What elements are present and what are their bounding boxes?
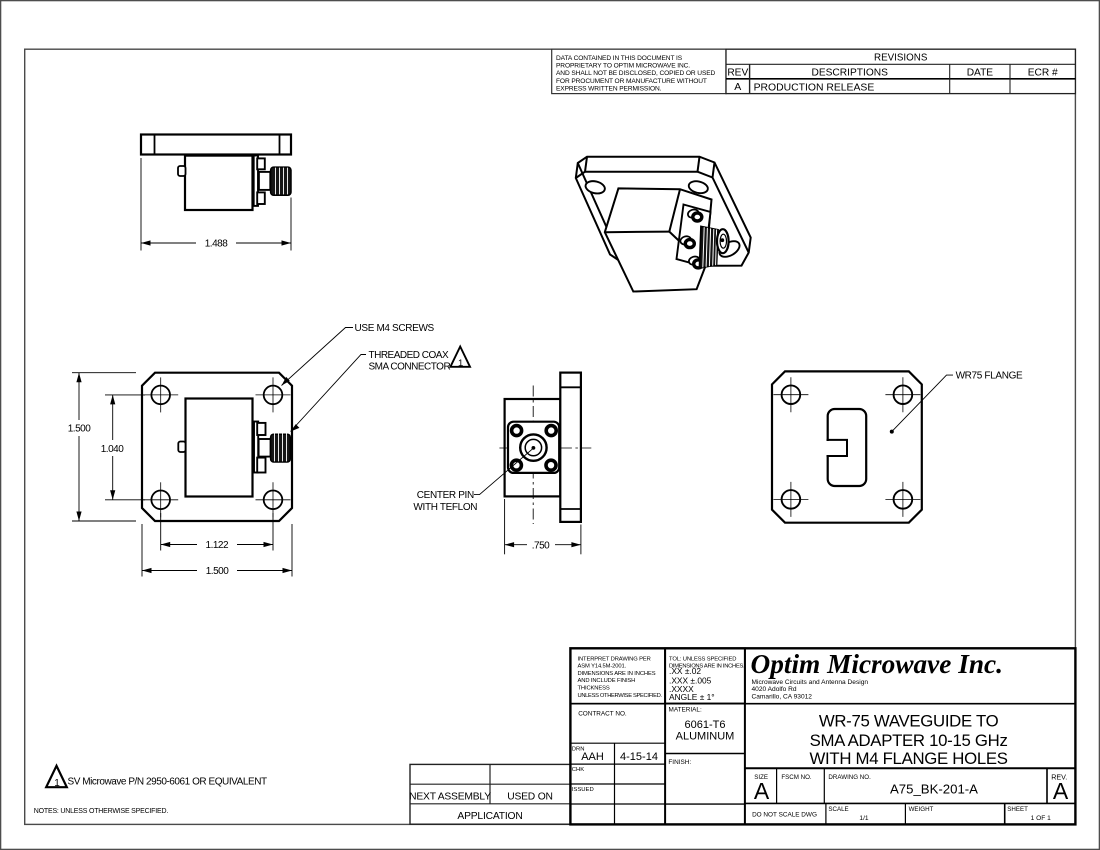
svg-text:6061-T6: 6061-T6 (685, 719, 726, 731)
svg-text:WEIGHT: WEIGHT (909, 806, 934, 813)
svg-text:PRODUCTION RELEASE: PRODUCTION RELEASE (754, 82, 875, 93)
svg-text:USED ON: USED ON (507, 792, 553, 803)
svg-text:DO NOT SCALE DWG: DO NOT SCALE DWG (752, 812, 817, 819)
svg-text:SMA ADAPTER 10-15 GHz: SMA ADAPTER 10-15 GHz (810, 731, 1008, 750)
svg-text:MATERIAL:: MATERIAL: (669, 706, 702, 713)
svg-text:Microwave Circuits and Antenna: Microwave Circuits and Antenna Design (752, 679, 869, 686)
svg-text:1 OF 1: 1 OF 1 (1031, 815, 1051, 822)
svg-text:1: 1 (458, 358, 463, 369)
svg-text:1: 1 (54, 778, 60, 789)
svg-text:ANGLE ± 1°: ANGLE ± 1° (669, 692, 715, 702)
svg-text:THREADED COAX: THREADED COAX (369, 350, 449, 361)
svg-text:WITH M4 FLANGE HOLES: WITH M4 FLANGE HOLES (809, 749, 1007, 768)
svg-text:FINISH:: FINISH: (668, 759, 691, 766)
svg-text:UNLESS OTHERWISE SPECIFIED.: UNLESS OTHERWISE SPECIFIED. (578, 693, 663, 699)
svg-text:SHEET: SHEET (1007, 806, 1028, 813)
svg-text:SV Microwave P/N 2950-6061 OR: SV Microwave P/N 2950-6061 OR EQUIVALENT (68, 776, 267, 787)
svg-text:1.500: 1.500 (206, 566, 229, 577)
svg-text:DATE: DATE (967, 67, 994, 78)
svg-text:USE M4 SCREWS: USE M4 SCREWS (355, 323, 435, 334)
svg-text:1/1: 1/1 (859, 815, 868, 822)
svg-text:WITH TEFLON: WITH TEFLON (413, 502, 477, 513)
svg-text:4-15-14: 4-15-14 (620, 751, 658, 763)
svg-text:NEXT ASSEMBLY: NEXT ASSEMBLY (409, 792, 491, 803)
svg-text:APPLICATION: APPLICATION (457, 811, 522, 822)
svg-text:CENTER PIN: CENTER PIN (417, 490, 474, 501)
svg-text:CONTRACT NO.: CONTRACT NO. (578, 711, 627, 718)
svg-text:A: A (1053, 778, 1069, 804)
svg-text:ECR #: ECR # (1028, 67, 1058, 78)
svg-text:AAH: AAH (581, 751, 604, 763)
svg-text:A: A (754, 778, 770, 804)
svg-text:NOTES: UNLESS OTHERWISE SPECIF: NOTES: UNLESS OTHERWISE SPECIFIED. (34, 808, 169, 815)
svg-text:1.122: 1.122 (206, 540, 229, 551)
svg-text:CHK: CHK (572, 767, 585, 773)
svg-text:SCALE: SCALE (828, 806, 848, 813)
svg-text:INTERPRET DRAWING PER: INTERPRET DRAWING PER (578, 656, 651, 662)
svg-text:PROPRIETARY TO OPTIM MICROWAVE: PROPRIETARY TO OPTIM MICROWAVE INC. (556, 63, 690, 70)
svg-text:Optim Microwave Inc.: Optim Microwave Inc. (751, 649, 1003, 679)
svg-text:DIMENSIONS ARE IN INCHES: DIMENSIONS ARE IN INCHES (578, 671, 656, 677)
svg-text:WR-75 WAVEGUIDE TO: WR-75 WAVEGUIDE TO (819, 712, 999, 731)
svg-text:1.040: 1.040 (101, 444, 124, 455)
svg-text:A: A (734, 81, 741, 93)
svg-text:AND INCLUDE FINISH: AND INCLUDE FINISH (578, 678, 636, 684)
svg-text:.750: .750 (532, 541, 550, 552)
svg-text:DESCRIPTIONS: DESCRIPTIONS (811, 67, 888, 78)
svg-text:REVISIONS: REVISIONS (874, 52, 928, 63)
svg-text:ASM Y14.5M-2001.: ASM Y14.5M-2001. (578, 664, 627, 670)
svg-text:FOR PROCUMENT OR MANUFACTURE W: FOR PROCUMENT OR MANUFACTURE WITHOUT (556, 78, 707, 85)
svg-text:4020 Adolfo Rd: 4020 Adolfo Rd (752, 686, 797, 693)
svg-text:ISSUED: ISSUED (572, 787, 594, 793)
svg-text:Camarillo, CA 93012: Camarillo, CA 93012 (752, 693, 813, 700)
svg-text:ALUMINUM: ALUMINUM (676, 730, 735, 742)
svg-text:1.488: 1.488 (205, 239, 228, 250)
svg-text:WR75 FLANGE: WR75 FLANGE (956, 371, 1023, 382)
svg-text:FSCM NO.: FSCM NO. (781, 774, 812, 781)
svg-text:TOL: UNLESS SPECIFIED: TOL: UNLESS SPECIFIED (669, 656, 736, 662)
svg-text:DRAWING NO.: DRAWING NO. (828, 774, 871, 781)
svg-text:DATA CONTAINED IN THIS DOCUMEN: DATA CONTAINED IN THIS DOCUMENT IS (556, 55, 683, 62)
svg-text:AND SHALL NOT BE DISCLOSED, CO: AND SHALL NOT BE DISCLOSED, COPIED OR US… (556, 70, 716, 77)
svg-text:REV: REV (727, 67, 748, 78)
svg-text:THICKNESS: THICKNESS (578, 686, 610, 692)
svg-text:A75_BK-201-A: A75_BK-201-A (890, 781, 978, 796)
svg-text:1.500: 1.500 (68, 424, 91, 435)
svg-text:SMA CONNECTOR: SMA CONNECTOR (369, 361, 451, 372)
svg-text:EXPRESS WRITTEN PERMISSION.: EXPRESS WRITTEN PERMISSION. (556, 85, 662, 92)
